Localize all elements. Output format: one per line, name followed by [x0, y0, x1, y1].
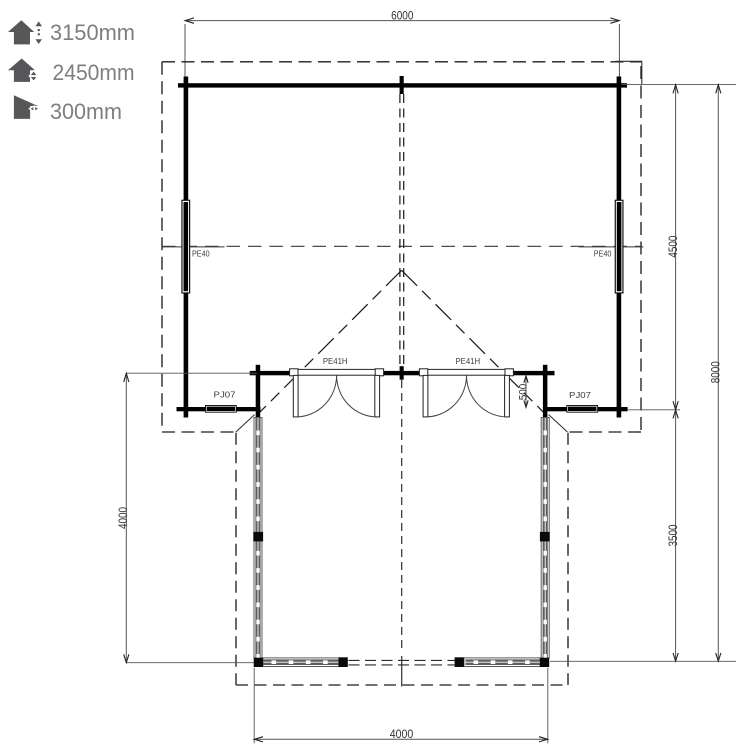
svg-text:3500: 3500 [668, 525, 680, 547]
svg-text:3150mm: 3150mm [50, 20, 135, 45]
svg-text:2450mm: 2450mm [53, 60, 135, 85]
svg-text:4500: 4500 [668, 236, 680, 258]
svg-text:500: 500 [517, 384, 529, 401]
svg-text:8000: 8000 [711, 361, 723, 383]
svg-text:6000: 6000 [391, 10, 413, 22]
svg-text:PJ07: PJ07 [214, 391, 236, 400]
svg-text:4000: 4000 [390, 729, 414, 741]
svg-text:PJ07: PJ07 [569, 391, 591, 400]
svg-text:PE40: PE40 [594, 249, 612, 259]
svg-text:300mm: 300mm [50, 99, 122, 124]
svg-text:4000: 4000 [118, 507, 130, 529]
svg-text:PE41H: PE41H [323, 356, 348, 366]
svg-text:PE41H: PE41H [455, 356, 480, 366]
svg-text:PE40: PE40 [192, 249, 210, 259]
